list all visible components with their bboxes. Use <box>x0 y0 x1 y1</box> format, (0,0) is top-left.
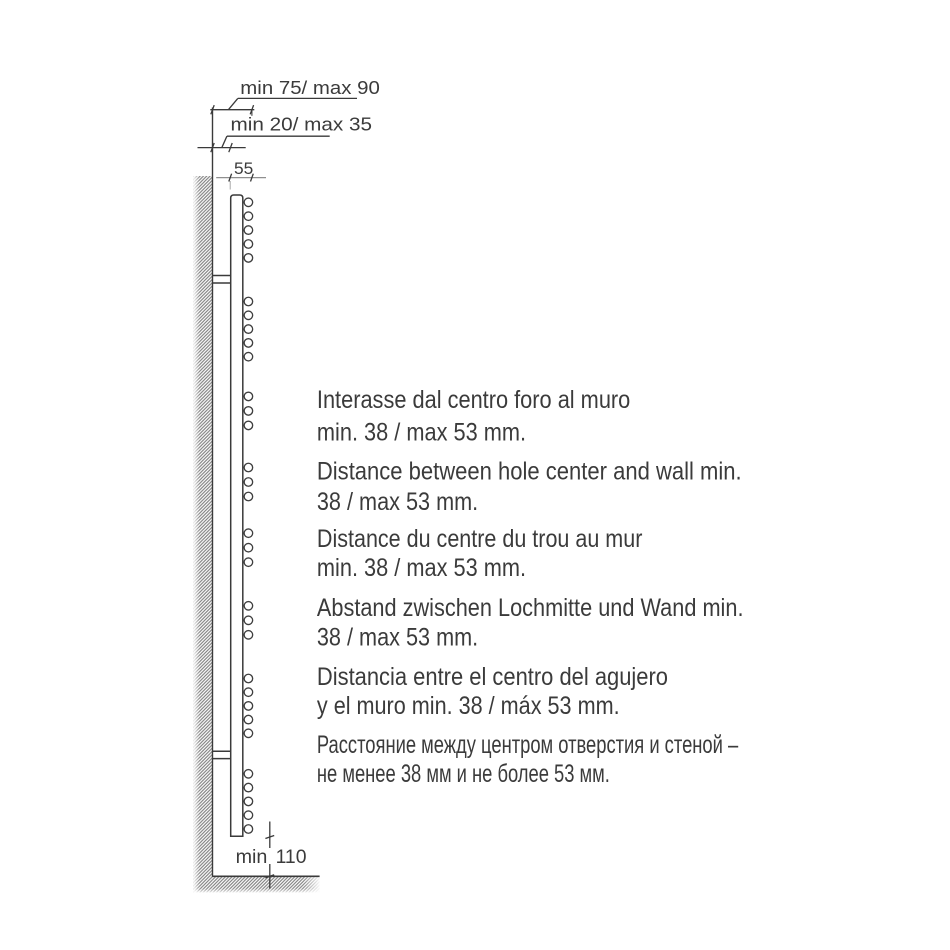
svg-text:55: 55 <box>234 159 253 178</box>
svg-text:Distancia entre el centro del: Distancia entre el centro del agujero <box>317 663 668 691</box>
svg-text:min 75/ max 90: min 75/ max 90 <box>240 77 379 98</box>
svg-text:min. 38 / max 53 mm.: min. 38 / max 53 mm. <box>317 554 526 582</box>
svg-text:38 / max 53 mm.: 38 / max 53 mm. <box>317 623 478 651</box>
svg-text:110: 110 <box>276 847 307 868</box>
svg-text:y el muro min. 38 / máx 53 mm.: y el muro min. 38 / máx 53 mm. <box>317 692 620 720</box>
svg-text:Distance between hole center a: Distance between hole center and wall mi… <box>317 457 742 485</box>
svg-text:38 / max 53 mm.: 38 / max 53 mm. <box>317 488 478 516</box>
svg-text:Distance du centre du trou au: Distance du centre du trou au mur <box>317 525 643 553</box>
svg-text:min 20/ max 35: min 20/ max 35 <box>231 113 373 134</box>
svg-text:Расстояние между центром отвер: Расстояние между центром отверстия и сте… <box>317 731 739 759</box>
svg-text:не менее 38 мм и не более 53 м: не менее 38 мм и не более 53 мм. <box>317 760 610 788</box>
svg-text:Interasse dal centro foro al m: Interasse dal centro foro al muro <box>317 386 630 414</box>
svg-text:Abstand zwischen Lochmitte und: Abstand zwischen Lochmitte und Wand min. <box>317 594 744 622</box>
svg-text:min: min <box>236 847 268 868</box>
svg-text:min. 38 / max 53 mm.: min. 38 / max 53 mm. <box>317 419 526 447</box>
